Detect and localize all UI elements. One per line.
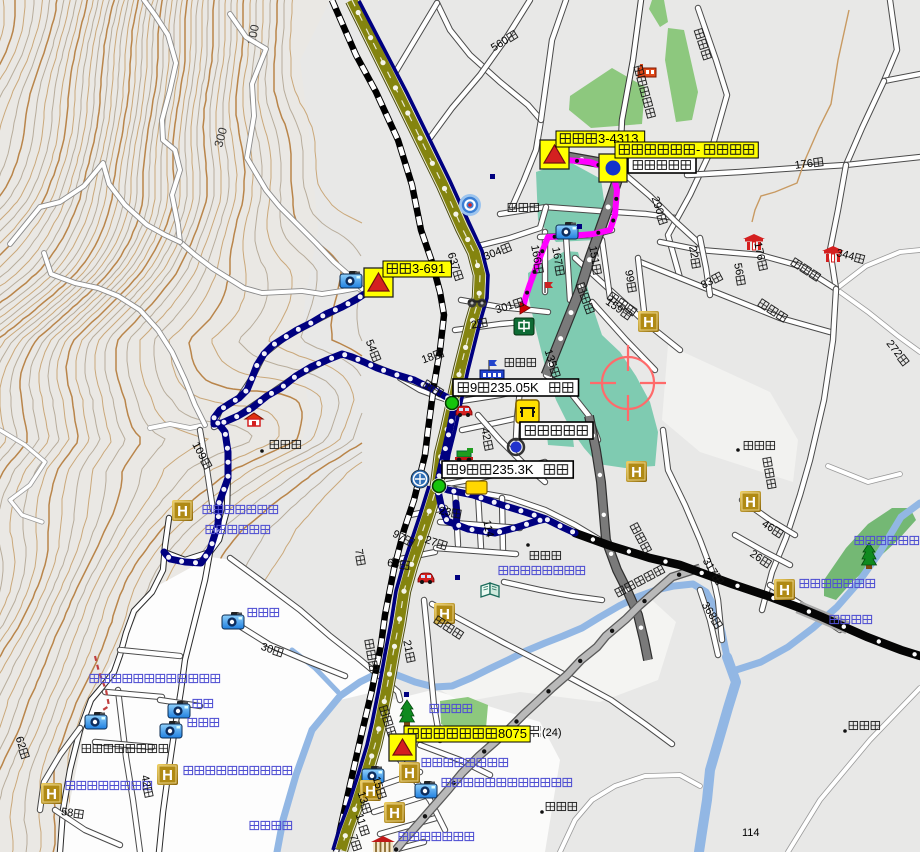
svg-text:235.3K: 235.3K: [492, 462, 534, 477]
svg-text:56: 56: [731, 262, 745, 276]
svg-text:235.05K: 235.05K: [490, 380, 539, 395]
svg-text:3-691: 3-691: [412, 261, 445, 276]
svg-text:42: 42: [478, 427, 492, 441]
svg-text:H: H: [745, 494, 756, 511]
svg-text:H: H: [643, 314, 654, 331]
svg-text:99: 99: [622, 269, 636, 283]
svg-text:58: 58: [60, 806, 74, 820]
svg-text:H: H: [162, 767, 173, 784]
svg-text:H: H: [389, 805, 400, 822]
svg-text:176: 176: [794, 157, 814, 171]
svg-text:42: 42: [138, 774, 152, 788]
svg-text:H: H: [177, 503, 188, 520]
svg-text:21: 21: [400, 639, 414, 653]
svg-text:9: 9: [459, 462, 466, 477]
svg-text:23: 23: [438, 505, 452, 519]
svg-text:H: H: [779, 582, 790, 599]
svg-text:(24): (24): [542, 727, 562, 739]
svg-text:H: H: [404, 765, 415, 782]
svg-text:H: H: [46, 786, 57, 803]
svg-text:63: 63: [386, 557, 400, 571]
svg-text:H: H: [631, 464, 642, 481]
svg-text:-: -: [696, 142, 700, 157]
svg-text:9: 9: [470, 380, 477, 395]
svg-text:114: 114: [742, 827, 760, 839]
svg-text:8075: 8075: [498, 726, 527, 741]
svg-text:22: 22: [686, 245, 700, 259]
